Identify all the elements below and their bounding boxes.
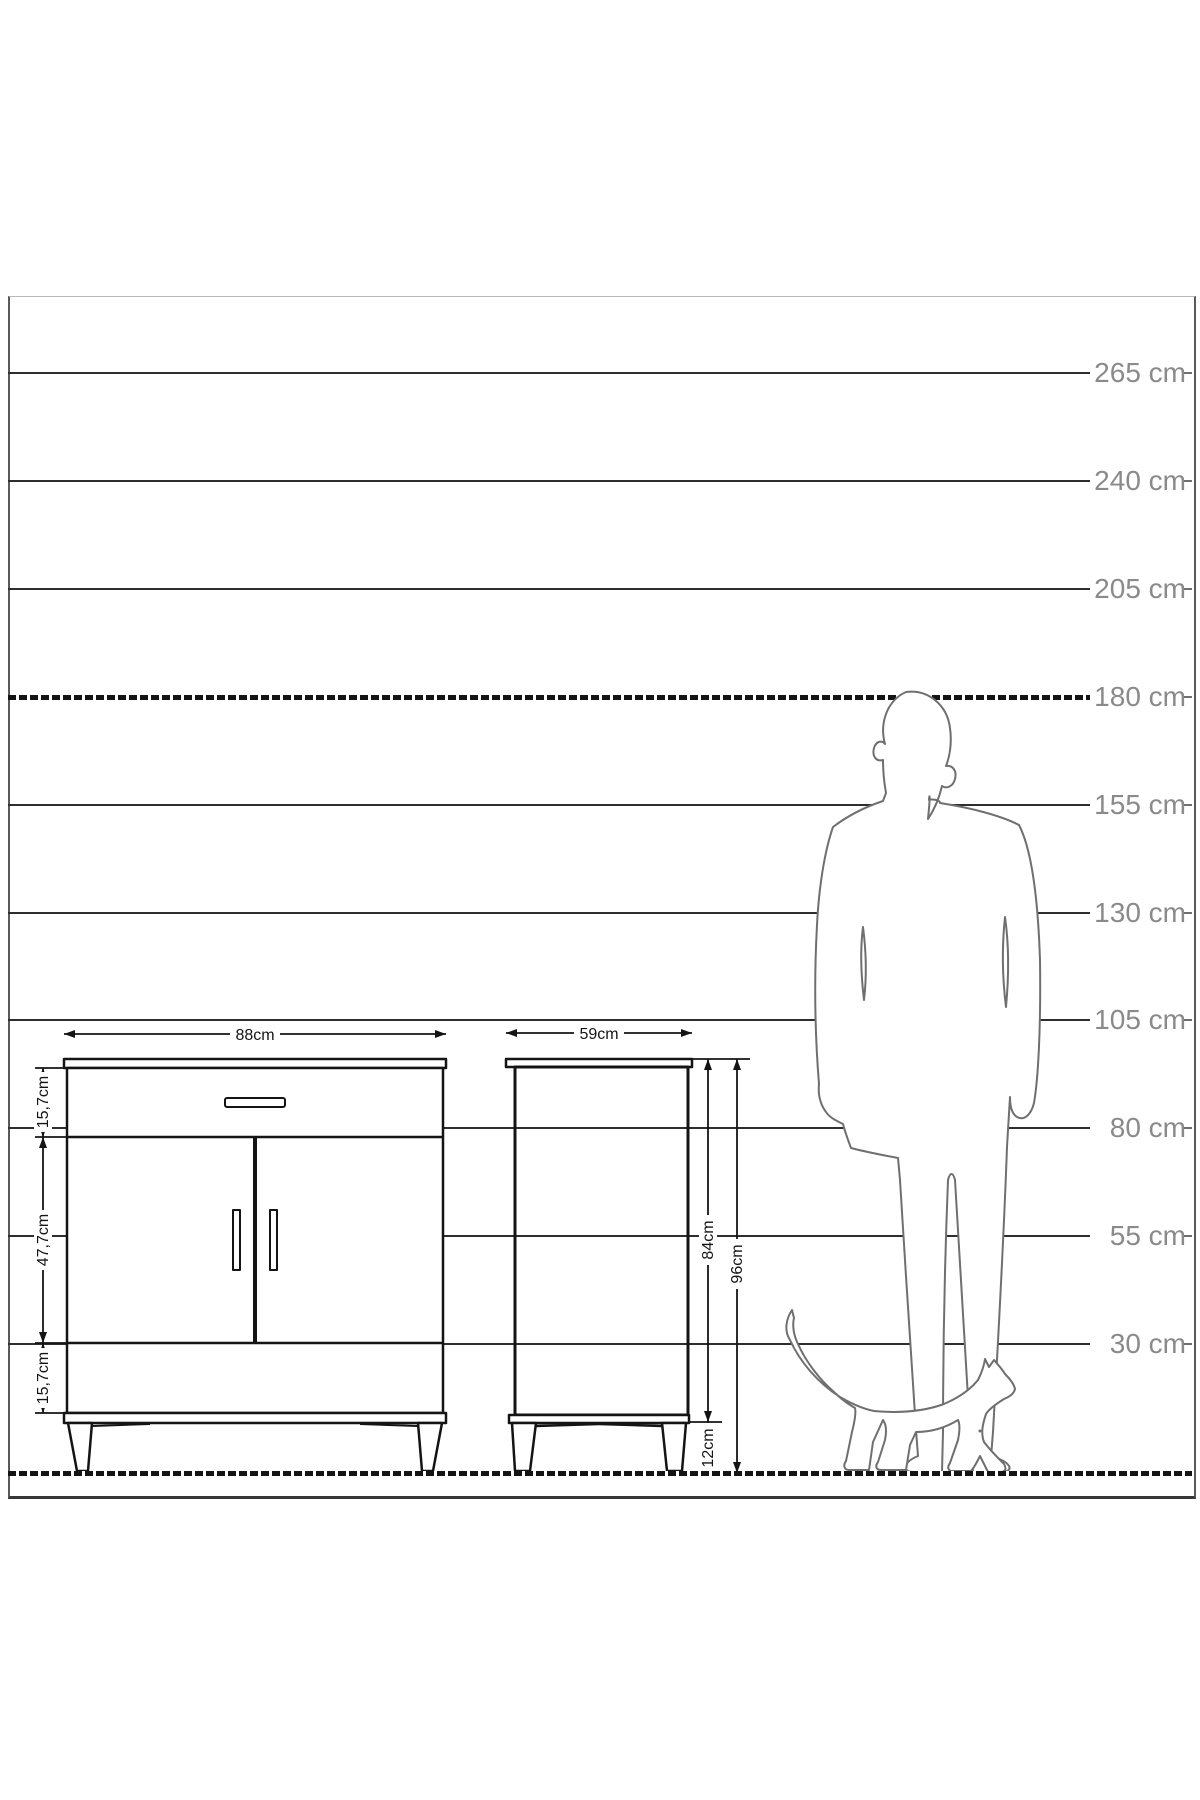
side-leg-height-label: 12cm (700, 1428, 717, 1467)
cat-fur-dot (979, 1430, 982, 1433)
front-bottom-drawer-height-label: 15,7cm (35, 1352, 52, 1404)
side-front-leg (512, 1423, 536, 1471)
front-left-door-handle (233, 1210, 240, 1270)
side-back-leg-brace (599, 1424, 662, 1426)
ground-line (8, 1471, 1192, 1476)
side-front-leg-brace (536, 1424, 599, 1426)
man-left-sleeve-slit (861, 927, 866, 1000)
front-door-height-label: 47,7cm (35, 1214, 52, 1266)
side-carcass (515, 1067, 688, 1415)
side-carcass-height-label: 84cm (700, 1220, 717, 1259)
front-top-board (64, 1059, 446, 1068)
front-left-leg-brace (92, 1424, 150, 1426)
front-base-rail (64, 1413, 446, 1423)
side-depth-label: 59cm (579, 1026, 618, 1043)
technical-drawing: 88cm 59cm 15,7cm 47,7cm 15,7cm 84cm (0, 0, 1200, 1800)
front-width-label: 88cm (235, 1027, 274, 1044)
size-comparison-diagram: 265 cm 240 cm 205 cm 180 cm 155 cm 130 c… (0, 0, 1200, 1800)
front-right-leg (418, 1423, 442, 1471)
front-left-leg (68, 1423, 92, 1471)
front-right-door-handle (270, 1210, 277, 1270)
front-right-leg-brace (360, 1424, 418, 1426)
cabinet-side-view (506, 1059, 692, 1471)
front-top-drawer-handle (225, 1098, 285, 1107)
side-total-height-label: 96cm (729, 1244, 746, 1283)
man-outline (815, 692, 1040, 1472)
man-right-sleeve-slit (1003, 917, 1008, 1007)
cabinet-front-view (64, 1059, 446, 1471)
front-top-drawer-height-label: 15,7cm (35, 1076, 52, 1128)
side-back-leg (662, 1423, 686, 1471)
man-silhouette (815, 692, 1040, 1472)
